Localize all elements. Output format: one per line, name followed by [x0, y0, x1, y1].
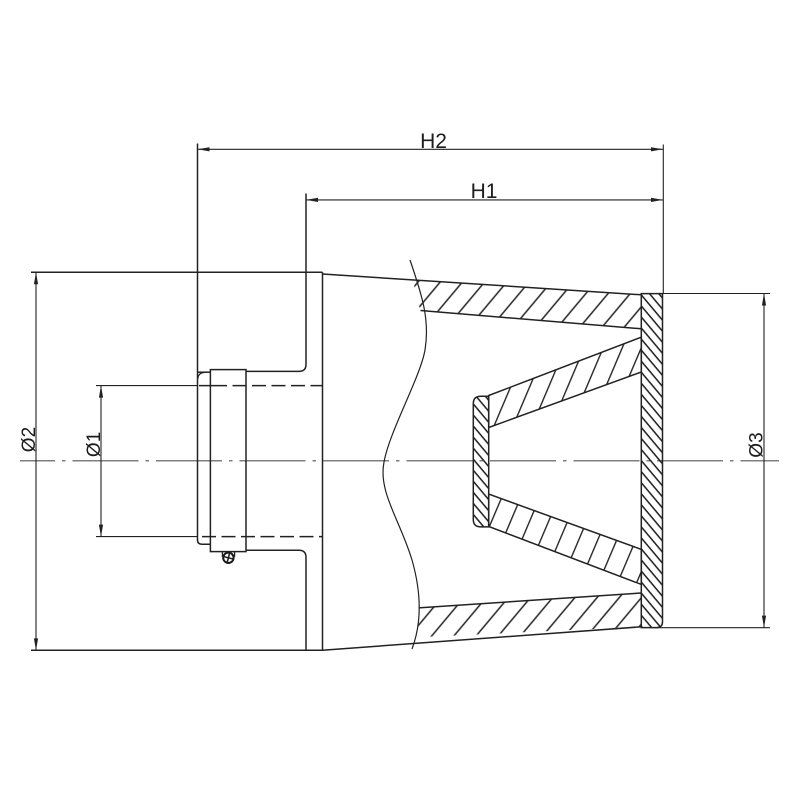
svg-text:H2: H2 [420, 130, 447, 153]
svg-text:H1: H1 [471, 180, 498, 203]
svg-text:Ø1: Ø1 [84, 432, 105, 457]
svg-text:Ø2: Ø2 [19, 427, 40, 452]
svg-text:Ø3: Ø3 [747, 432, 768, 457]
